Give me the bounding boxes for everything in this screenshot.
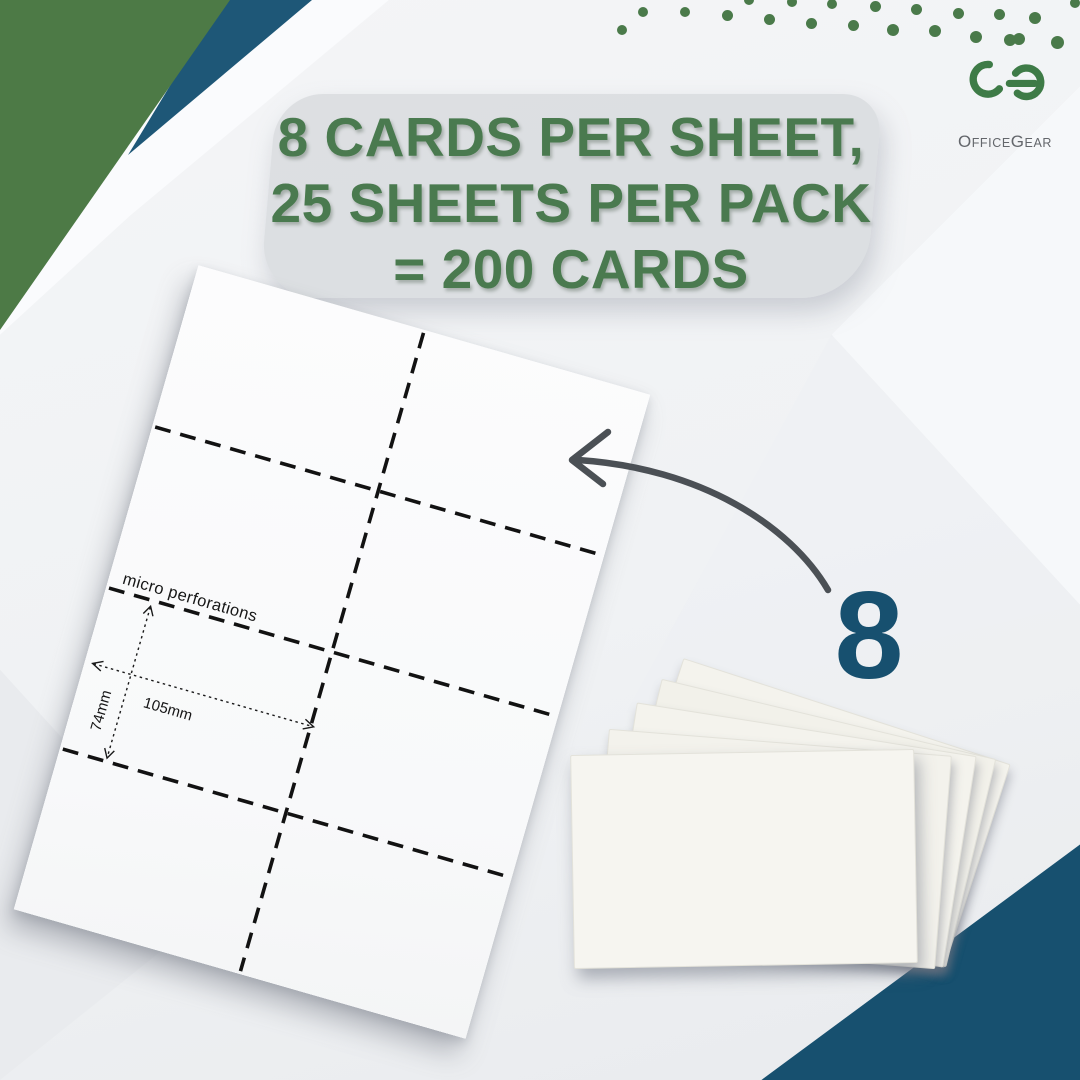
green-dot (1070, 0, 1080, 8)
card-height-label: 74mm (87, 688, 115, 733)
green-dot (887, 24, 899, 36)
green-dot (764, 14, 775, 25)
headline-line-2: 25 SHEETS PER PACK (268, 170, 874, 236)
green-dot (1029, 12, 1041, 24)
perforation-diagram: micro perforations 105mm 74mm (14, 265, 650, 1039)
perforated-sheet: micro perforations 105mm 74mm (14, 265, 650, 1039)
height-dimension-arrow (102, 605, 155, 760)
green-dot (744, 0, 754, 5)
cards-count-callout: 8 (805, 574, 933, 698)
brand-letters: ffice (972, 136, 1011, 150)
green-dot (638, 7, 648, 17)
green-dot (827, 0, 837, 9)
green-dot (806, 18, 817, 29)
green-dot (870, 1, 881, 12)
green-dot (848, 20, 859, 31)
green-dot (1004, 34, 1016, 46)
green-dot (680, 7, 690, 17)
green-dot (953, 8, 964, 19)
green-dot (970, 31, 982, 43)
green-dot (722, 10, 733, 21)
perforation-lines (17, 269, 646, 1035)
green-dot (787, 0, 797, 7)
green-dot (1051, 36, 1064, 49)
green-dot (929, 25, 941, 37)
brand-letter: G (1011, 132, 1025, 151)
card (570, 749, 918, 969)
headline-line-1: 8 CARDS PER SHEET, (268, 104, 874, 170)
headline-text: 8 CARDS PER SHEET, 25 SHEETS PER PACK = … (268, 104, 874, 302)
product-marketing-image: OfficeGear 8 CARDS PER SHEET, 25 SHEETS … (0, 0, 1080, 1080)
brand-letters: ear (1025, 136, 1053, 150)
officegear-logo-icon (925, 55, 1080, 135)
green-dot (617, 25, 627, 35)
card-width-label: 105mm (141, 694, 194, 724)
brand-name: OfficeGear (930, 132, 1080, 152)
green-dot (994, 9, 1005, 20)
green-dot (911, 4, 922, 15)
headline-line-3: = 200 CARDS (268, 236, 874, 302)
brand-letter: O (958, 132, 972, 151)
